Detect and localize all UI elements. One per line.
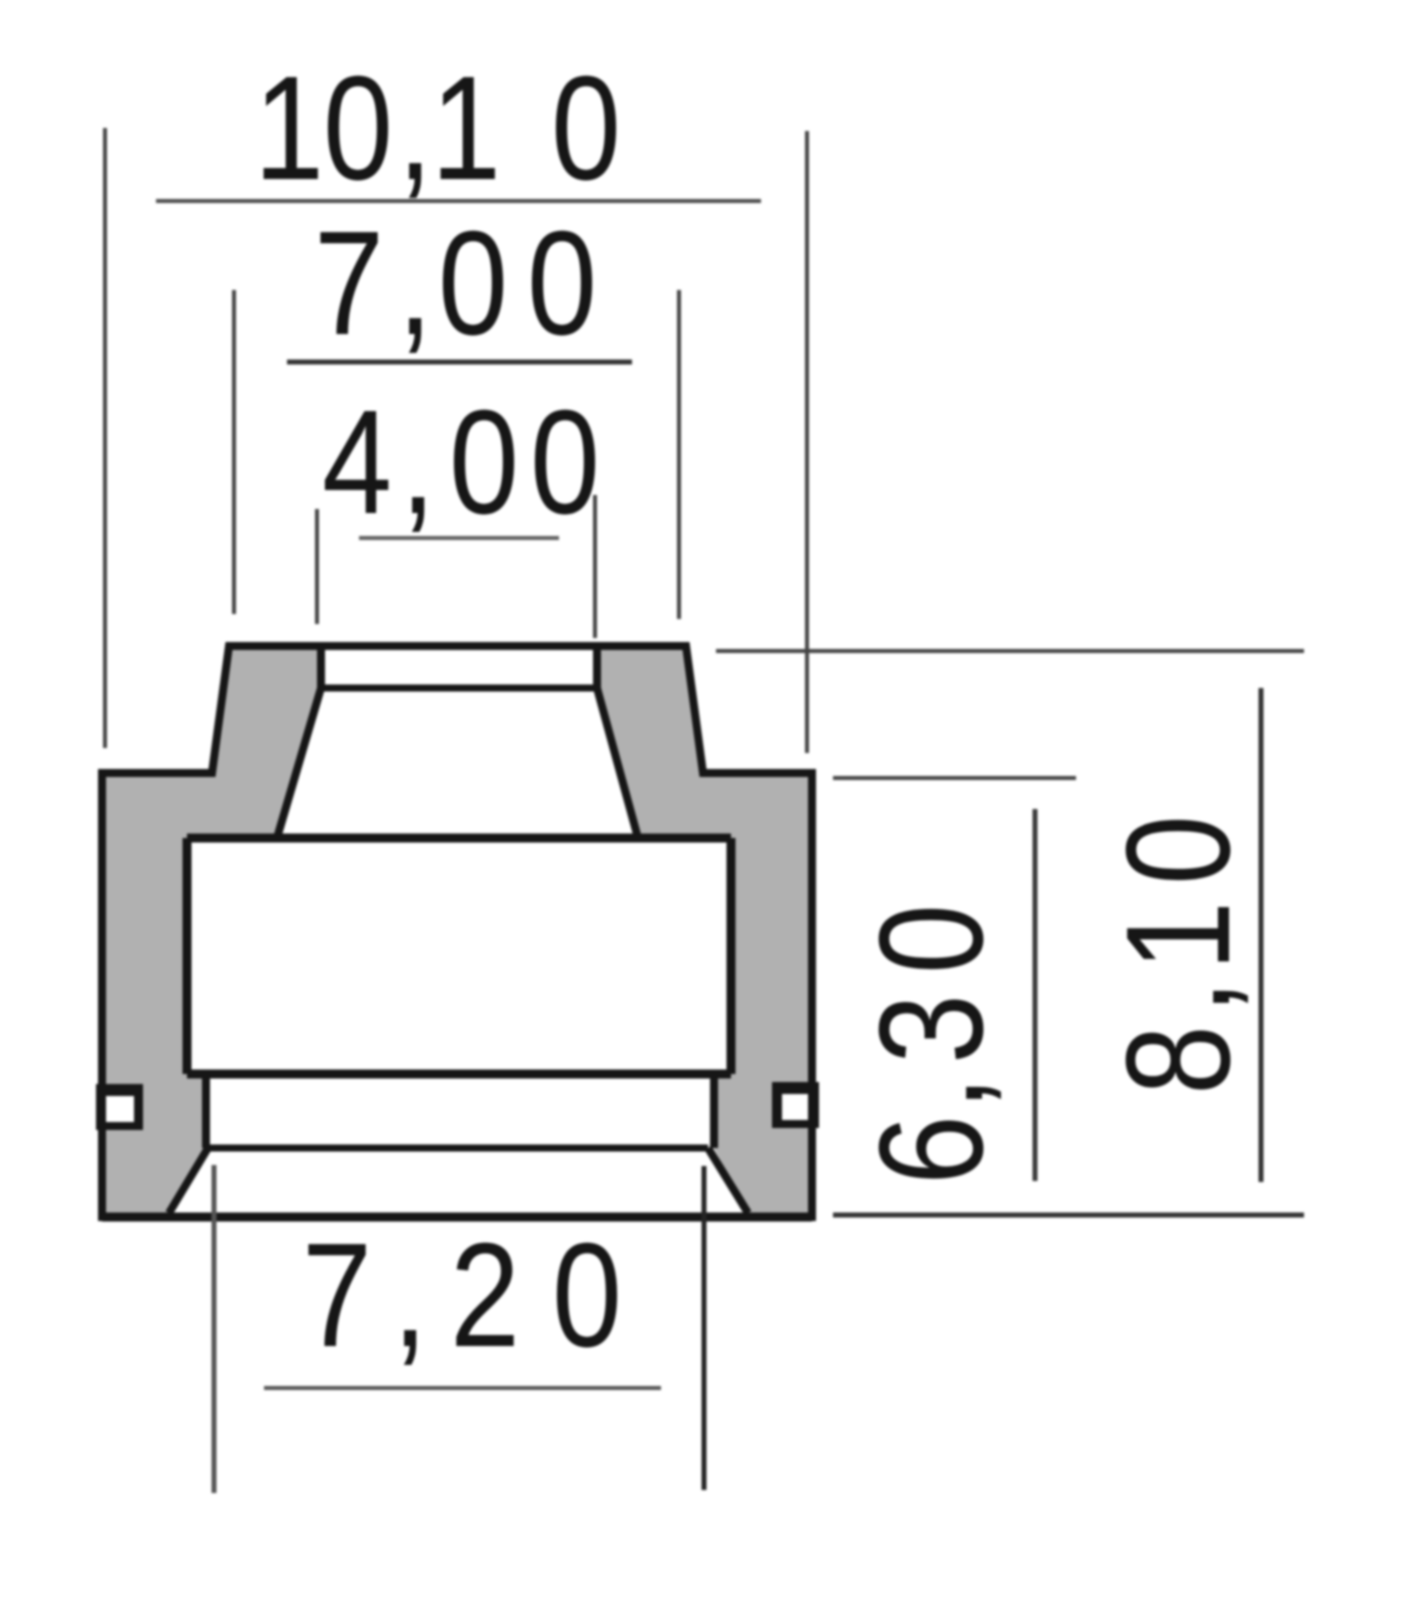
- svg-text:0: 0: [1096, 815, 1261, 885]
- svg-text:0: 0: [438, 201, 508, 366]
- svg-text:0: 0: [551, 46, 621, 211]
- svg-text:0: 0: [323, 46, 393, 211]
- svg-text:0: 0: [449, 380, 519, 545]
- svg-text:8: 8: [1096, 1025, 1261, 1095]
- svg-text:2: 2: [450, 1213, 520, 1378]
- svg-text:,: ,: [401, 380, 436, 545]
- svg-text:1: 1: [431, 46, 501, 211]
- svg-text:,: ,: [398, 46, 433, 211]
- svg-text:,: ,: [398, 201, 433, 366]
- svg-text:1: 1: [254, 46, 324, 211]
- svg-text:0: 0: [552, 1213, 622, 1378]
- svg-text:7: 7: [302, 1213, 372, 1378]
- svg-text:,: ,: [849, 1076, 1014, 1111]
- svg-text:3: 3: [849, 994, 1014, 1064]
- svg-text:0: 0: [530, 380, 600, 545]
- svg-text:7: 7: [314, 201, 384, 366]
- svg-text:6: 6: [849, 1115, 1014, 1185]
- svg-text:4: 4: [322, 380, 392, 545]
- svg-text:0: 0: [849, 904, 1014, 974]
- svg-text:,: ,: [1096, 980, 1261, 1015]
- svg-text:,: ,: [393, 1213, 428, 1378]
- svg-text:0: 0: [527, 201, 597, 366]
- svg-text:1: 1: [1096, 901, 1261, 971]
